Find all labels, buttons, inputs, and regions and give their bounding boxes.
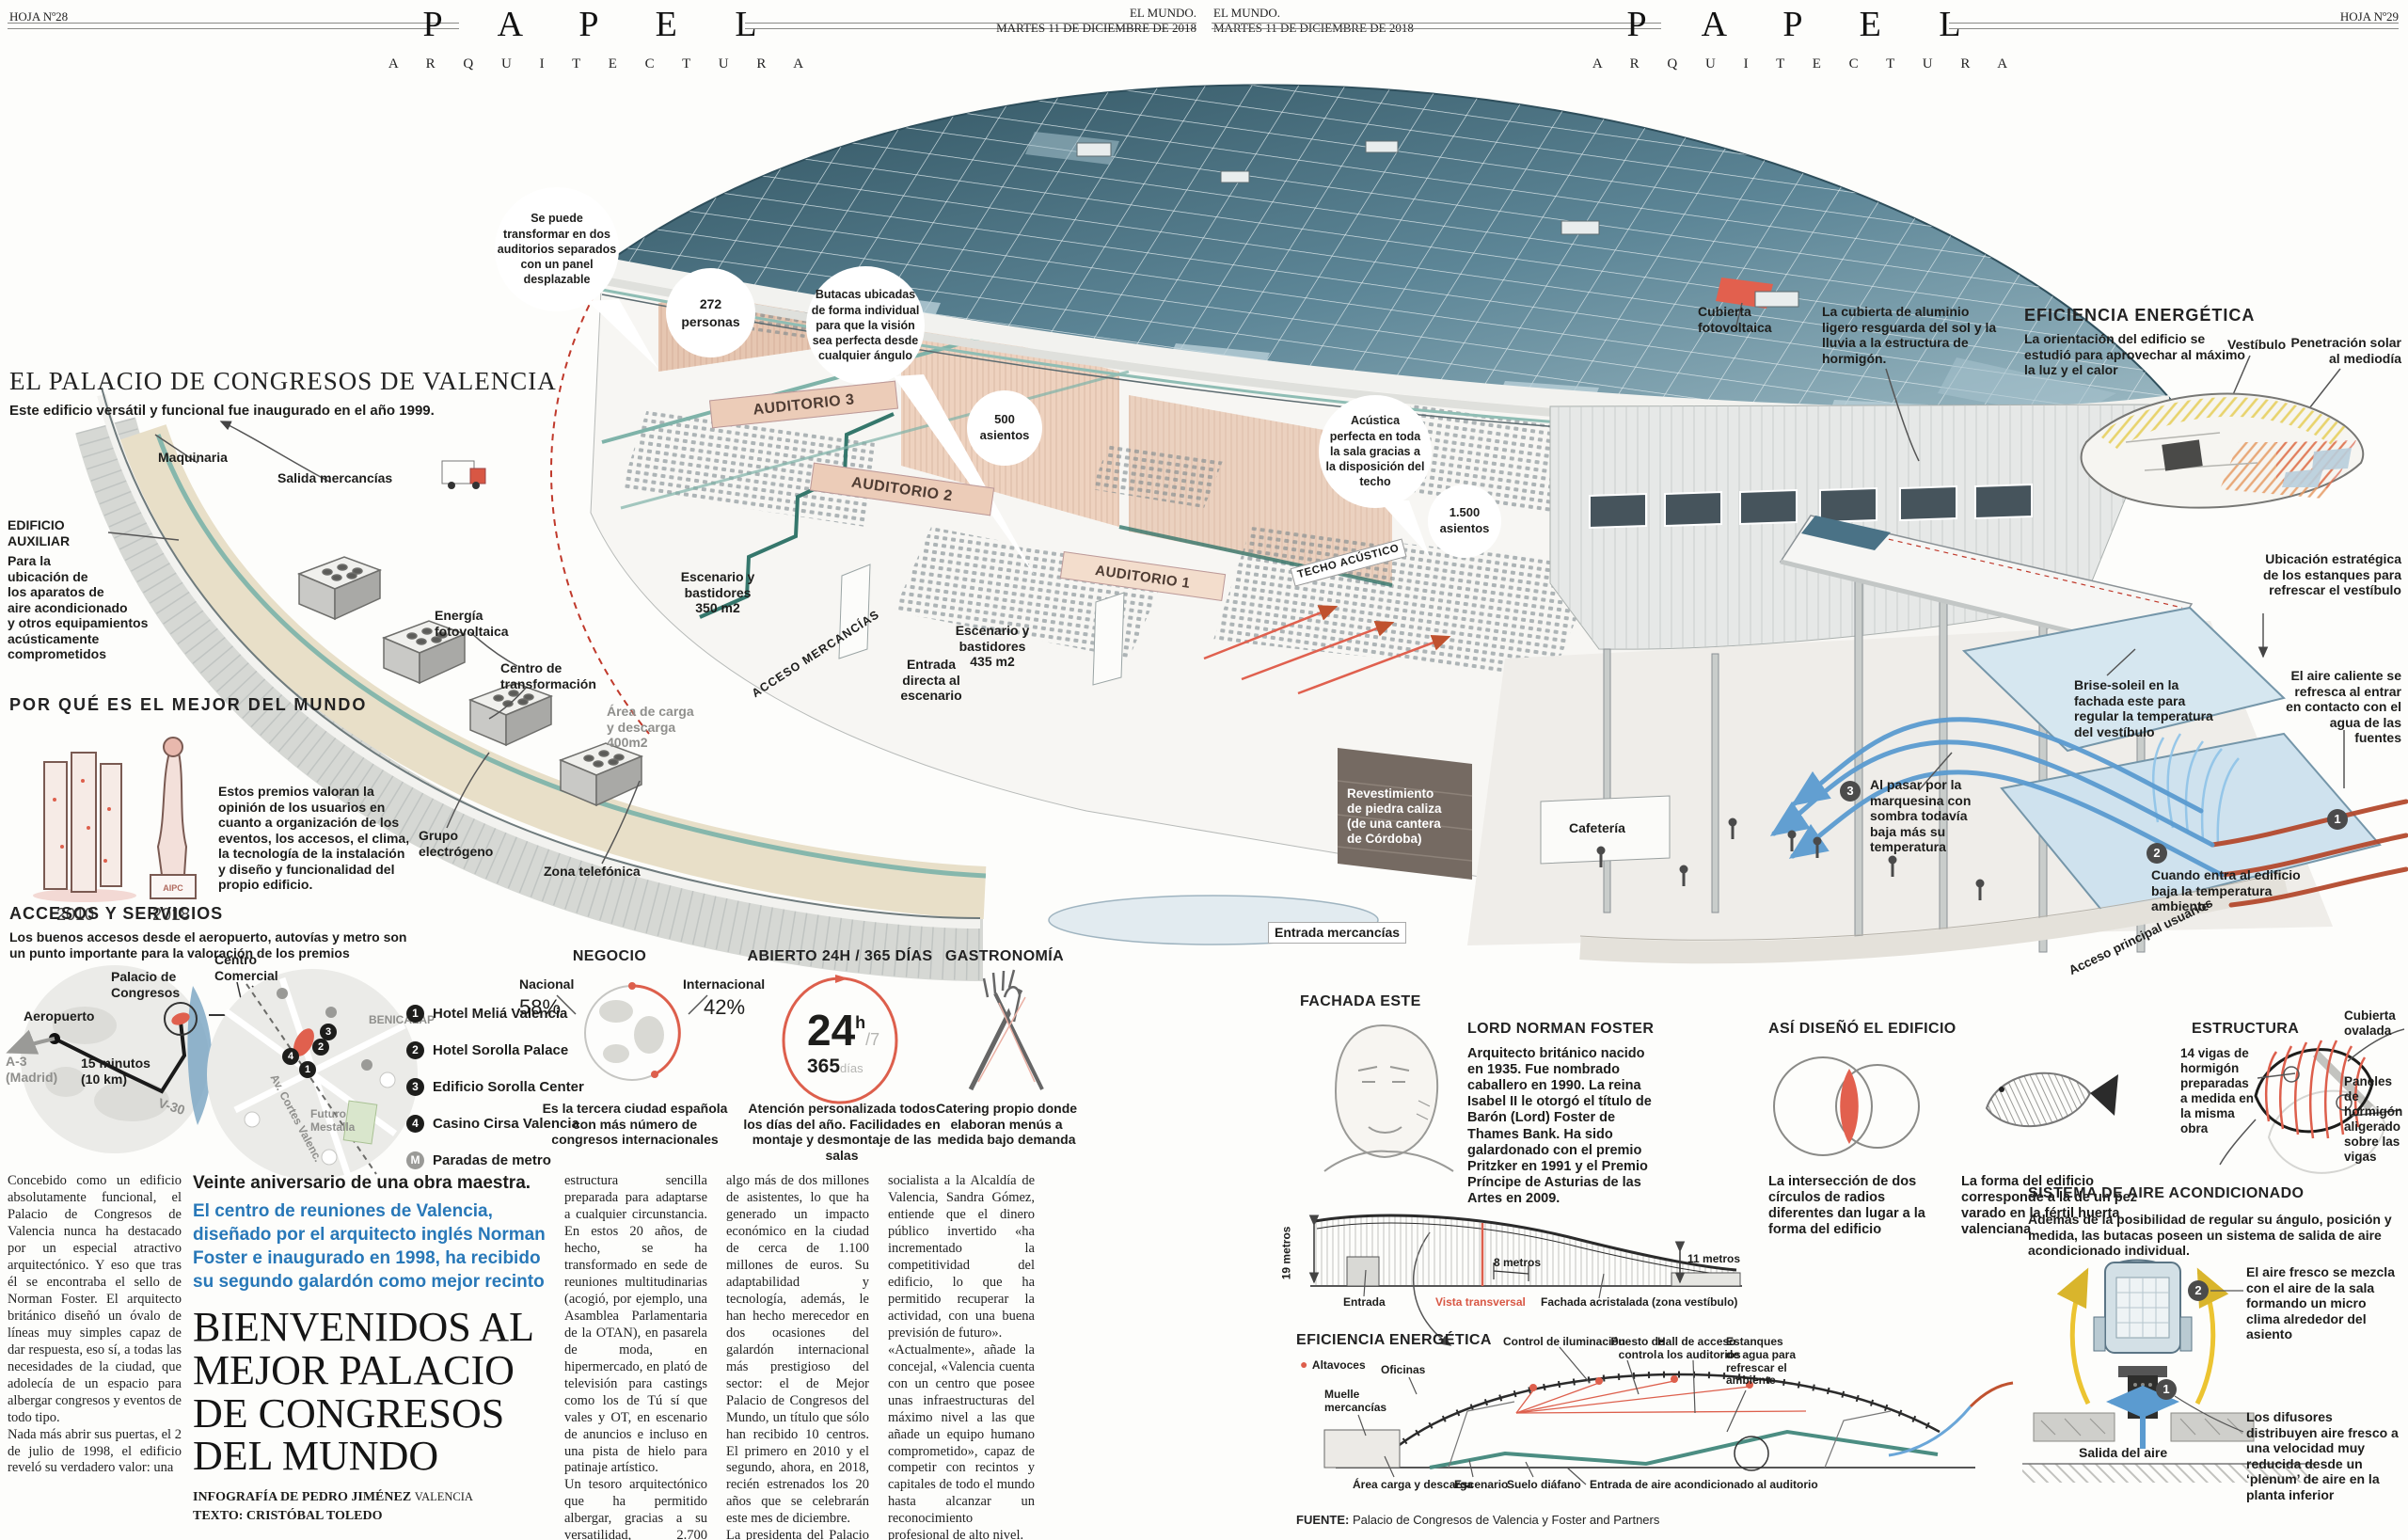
negocio-internacional-pct: 42% (704, 995, 745, 1020)
award-2018-icon: AIPC (150, 738, 196, 898)
legend-item: 2Hotel Sorolla Palace (406, 1032, 584, 1069)
city-maps (9, 965, 418, 1180)
paper-name: EL MUNDO. (1130, 6, 1196, 20)
section-name-right: A R Q U I T E C T U R A (1592, 56, 2020, 72)
estructura-paneles: Paneles de hormigón aligerado sobre las … (2344, 1074, 2408, 1165)
newspaper-spread: AIPC (0, 0, 2408, 1540)
negocio-internacional: Internacional (683, 976, 765, 992)
callout-panel-desplazable: Se puede transformar en dos auditorios s… (495, 187, 619, 311)
label-salida-mercancias: Salida mercancías (277, 470, 392, 486)
diseno-circulos-text: La intersección de dos círculos de radio… (1768, 1174, 1938, 1238)
norman-foster-portrait (1324, 1025, 1453, 1171)
paper-name: EL MUNDO. (1213, 6, 1280, 20)
section-por-que: POR QUÉ ES EL MEJOR DEL MUNDO (9, 696, 367, 715)
flow-badge-1: 1 (2327, 809, 2348, 830)
label-centro-transformacion: Centro de transformación (500, 660, 596, 691)
label-cuando-entra: Cuando entra al edificio baja la tempera… (2151, 867, 2306, 914)
paper-date-left: EL MUNDO. MARTES 11 DE DICIEMBRE DE 2018 (978, 6, 1196, 37)
map-badge-3: 3 (320, 1024, 337, 1040)
label-entrada-mercancias: Entrada mercancías (1268, 922, 1406, 944)
label-escenario-350: Escenario y bastidores 350 m2 (661, 569, 774, 616)
section-abierto: ABIERTO 24H / 365 DÍAS (747, 948, 932, 965)
award-2010-icon (33, 753, 136, 902)
credit-texto: TEXTO: CRISTÓBAL TOLEDO (193, 1509, 383, 1523)
map-badge-2: 2 (312, 1039, 329, 1056)
section-eficiencia-top: EFICIENCIA ENERGÉTICA (2024, 307, 2255, 325)
abierto-24: 24 (807, 1006, 855, 1055)
callout-butacas: Butacas ubicadas de forma individual par… (806, 266, 925, 385)
map-label-futuro-mestalla: Futuro Mestalla (310, 1108, 355, 1135)
speaker-dot-icon: ● (1300, 1357, 1307, 1372)
article-headline: BIENVENIDOS AL MEJOR PALACIO DE CONGRESO… (193, 1306, 534, 1478)
eficiencia-top-text: La orientación del edificio se estudió p… (2024, 331, 2255, 378)
section-foster: LORD NORMAN FOSTER (1467, 1021, 1654, 1038)
badge-3-icon: 3 (406, 1078, 424, 1096)
label-cubierta-fotovoltaica: Cubierta fotovoltaica (1698, 304, 1772, 335)
design-icons (1774, 1057, 2118, 1155)
section-negocio: NEGOCIO (573, 948, 646, 965)
source-text: Palacio de Congresos de Valencia y Foste… (1353, 1513, 1659, 1527)
foster-bio: Arquitecto británico nacido en 1935. Fue… (1467, 1046, 1663, 1207)
infographic-subtitle: Este edificio versátil y funcional fue i… (9, 403, 435, 420)
label-maquinaria: Maquinaria (158, 450, 228, 466)
masthead-rule (1212, 23, 1661, 29)
svg-text:AIPC: AIPC (163, 883, 183, 893)
masthead: P A P E L (1626, 4, 1985, 45)
fachada-entrada: Entrada (1343, 1296, 1386, 1310)
article-col-1: Concebido como un edificio absolutamente… (8, 1173, 182, 1477)
paper-date: MARTES 11 DE DICIEMBRE DE 2018 (996, 21, 1196, 35)
badge-1-icon: 1 (406, 1005, 424, 1023)
label-cubierta-aluminio: La cubierta de aluminio ligero resguarda… (1822, 304, 1996, 366)
label-aire-caliente: El aire caliente se refresca al entrar e… (2284, 668, 2401, 746)
aire-badge-2: 2 (2188, 1280, 2209, 1301)
flow-badge-3: 3 (1840, 781, 1861, 802)
fachada-vista-transversal: Vista transversal (1435, 1296, 1526, 1310)
infographic-title: EL PALACIO DE CONGRESOS DE VALENCIA (9, 367, 557, 396)
section-fachada: FACHADA ESTE (1300, 993, 1421, 1010)
callout-500-asientos: 500 asientos (967, 390, 1042, 466)
fachada-11m: 11 metros (1687, 1253, 1740, 1266)
badge-2-icon: 2 (406, 1041, 424, 1059)
source-label: FUENTE: (1296, 1513, 1349, 1527)
label-suelo-diafano: Suelo diáfano (1507, 1479, 1581, 1492)
label-brise-soleil: Brise-soleil en la fachada este para reg… (2074, 677, 2213, 739)
section-estructura: ESTRUCTURA (2192, 1021, 2299, 1038)
fachada-19m: 19 metros (1280, 1227, 1293, 1280)
label-estanques: Estanques de agua para refrescar el ambi… (1726, 1336, 1796, 1388)
label-zona-telefonica: Zona telefónica (544, 864, 641, 880)
callout-1500-asientos: 1.500 asientos (1428, 484, 1501, 558)
article-deck: El centro de reuniones de Valencia, dise… (193, 1199, 546, 1294)
source-line: FUENTE: Palacio de Congresos de Valencia… (1296, 1513, 1659, 1527)
abierto-h: h (855, 1013, 865, 1032)
label-ubicacion-estanques: Ubicación estratégica de los estanques p… (2256, 551, 2401, 598)
label-cafeteria: Cafetería (1569, 820, 1625, 836)
label-marquesina: Al pasar por la marquesina con sombra to… (1870, 777, 1971, 855)
label-edificio-auxiliar-text: Para la ubicación de los aparatos de air… (8, 553, 148, 662)
por-que-text: Estos premios valoran la opinión de los … (218, 784, 416, 893)
masthead: P A P E L (422, 4, 781, 45)
masthead-rule (8, 23, 459, 29)
fachada-acristalada: Fachada acristalada (zona vestíbulo) (1541, 1296, 1737, 1310)
credit-place: VALENCIA (415, 1490, 473, 1503)
badge-4-icon: 4 (406, 1115, 424, 1133)
map-label-a3: A-3 (Madrid) (6, 1054, 57, 1085)
label-edificio-auxiliar-title: EDIFICIO AUXILIAR (8, 517, 70, 548)
legend-hotel-3: Edificio Sorolla Center (433, 1079, 584, 1095)
callout-acustica: Acústica perfecta en toda la sala gracia… (1319, 395, 1432, 508)
section-gastronomia: GASTRONOMÍA (945, 948, 1064, 965)
label-entrada-aire: Entrada de aire acondicionado al auditor… (1590, 1479, 1818, 1492)
altavoces-item: ● Altavoces (1300, 1357, 1366, 1373)
label-revestimiento: Revestimiento de piedra caliza (de una c… (1347, 786, 1442, 847)
legend-metro: Paradas de metro (433, 1152, 551, 1168)
gastronomia-text: Catering propio donde elaboran menús a m… (931, 1101, 1082, 1148)
flow-badge-2: 2 (2147, 843, 2167, 864)
label-penetracion: Penetración solar al mediodía (2284, 335, 2401, 366)
section-accesos: ACCESOS Y SERVICIOS (9, 905, 223, 924)
label-escenario-seccion: Escenario (1454, 1479, 1508, 1492)
section-diseno: ASÍ DISEÑÓ EL EDIFICIO (1768, 1021, 1956, 1038)
map-label-aeropuerto: Aeropuerto (24, 1008, 94, 1024)
page-number-right: HOJA Nº29 (2286, 9, 2399, 24)
map-label-minutos: 15 minutos (10 km) (81, 1056, 150, 1087)
negocio-text: Es la tercera ciudad española con más nú… (541, 1101, 729, 1148)
article-credits: INFOGRAFÍA DE PEDRO JIMÉNEZ VALENCIA TEX… (193, 1488, 473, 1525)
negocio-nacional-pct: 58% (519, 995, 561, 1020)
label-muelle: Muelle mercancías (1324, 1389, 1386, 1415)
cutlery-icon (971, 970, 1042, 1089)
legend-hotel-2: Hotel Sorolla Palace (433, 1042, 568, 1058)
label-altavoces: Altavoces (1312, 1358, 1366, 1372)
abierto-text: Atención personalizada todos los días de… (743, 1101, 941, 1163)
label-vestibulo: Vestíbulo (2227, 337, 2286, 353)
abierto-figure: 24h/7 365días (807, 1005, 879, 1078)
article-kicker: Veinte aniversario de una obra maestra. (193, 1173, 531, 1194)
abierto-7: /7 (865, 1030, 879, 1049)
label-energia-fotovoltaica: Energía fotovoltaica (435, 608, 509, 639)
aire-badge-1: 1 (2156, 1379, 2177, 1400)
label-oficinas: Oficinas (1381, 1364, 1425, 1377)
cross-section (1324, 1347, 2013, 1484)
aire-d1-text: Los difusores distribuyen aire fresco a … (2246, 1409, 2404, 1502)
article-col-4: socialista a la Alcaldía de Valencia, Sa… (888, 1173, 1035, 1540)
aire-intro: Además de la posibilidad de regular su á… (2028, 1212, 2404, 1259)
label-grupo-electrogeno: Grupo electrógeno (419, 828, 493, 859)
map-badge-1: 1 (299, 1061, 316, 1078)
map-badge-4: 4 (282, 1048, 299, 1065)
truck-illustration (442, 461, 485, 489)
paper-date-right: EL MUNDO. MARTES 11 DE DICIEMBRE DE 2018 (1213, 6, 1439, 37)
map-label-palacio: Palacio de Congresos (111, 969, 180, 1000)
article-col-3: algo más de dos millones de asistentes, … (726, 1173, 869, 1540)
section-eficiencia-bottom: EFICIENCIA ENERGÉTICA (1296, 1332, 1492, 1349)
credit-infografia: INFOGRAFÍA DE PEDRO JIMÉNEZ (193, 1490, 411, 1504)
fachada-8m: 8 metros (1494, 1257, 1541, 1270)
aire-d2-text: El aire fresco se mezcla con el aire de … (2246, 1264, 2401, 1342)
section-name-left: A R Q U I T E C T U R A (388, 56, 816, 72)
map-label-centro-comercial: Centro Comercial (214, 952, 278, 983)
article-col-2: estructura sencilla preparada para adapt… (564, 1173, 707, 1540)
estructura-cubierta: Cubierta ovalada (2344, 1008, 2396, 1039)
abierto-dias: días (840, 1061, 863, 1075)
negocio-nacional: Nacional (519, 976, 574, 992)
abierto-365: 365 (807, 1056, 840, 1077)
label-salida-aire: Salida del aire (2079, 1445, 2167, 1461)
metro-icon: M (406, 1151, 424, 1169)
label-area-carga: Área de carga y descarga 400m2 (607, 704, 694, 751)
section-aire: SISTEMA DE AIRE ACONDICIONADO (2028, 1185, 2304, 1202)
label-entrada-escenario: Entrada directa al escenario (884, 657, 978, 704)
hotel-legend: 1Hotel Meliá Valencia 2Hotel Sorolla Pal… (406, 995, 584, 1179)
estructura-vigas: 14 vigas de hormigón preparadas a medida… (2180, 1046, 2254, 1136)
callout-272-personas: 272 personas (666, 268, 755, 357)
